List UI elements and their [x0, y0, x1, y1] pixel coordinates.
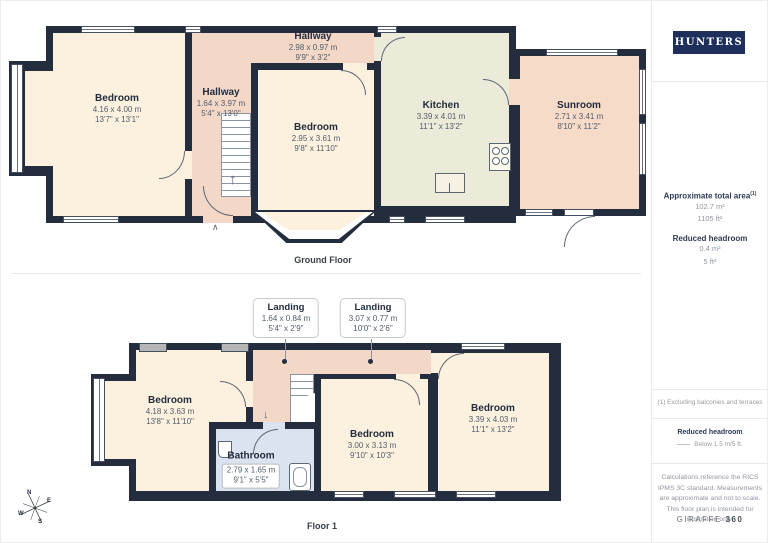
room-label-bedroom-left: Bedroom 4.18 x 3.63 m 13'8" x 11'10"	[146, 394, 194, 428]
landing-callout-b: Landing 3.07 x 0.77 m 10'0" x 2'6"	[340, 298, 406, 338]
room-label-bathroom: Bathroom 2.79 x 1.65 m 9'1" x 5'5"	[222, 450, 280, 489]
compass-e: E	[47, 498, 51, 504]
room-label-bedroom-left: Bedroom 4.16 x 4.00 m 13'7" x 13'1"	[93, 92, 141, 126]
door-opening	[374, 37, 381, 61]
compass-w: W	[18, 511, 24, 517]
sidebar-border	[651, 1, 652, 543]
bathroom-wall	[209, 422, 216, 501]
room-label-sunroom: Sunroom 2.71 x 3.41 m 8'10" x 11'2"	[555, 99, 603, 133]
window	[639, 69, 646, 115]
window	[63, 216, 119, 223]
compass-n: N	[27, 490, 31, 496]
obscured-window	[139, 343, 167, 352]
room-label-hallway-top: Hallway 2.98 x 0.97 m 9'9" x 3'2"	[289, 30, 337, 64]
sidebar-divider	[651, 81, 768, 82]
gf-hallway-connector	[251, 33, 258, 63]
stairs-up-arrow: ↑	[229, 171, 237, 188]
giraffe360-credit: GIRAFFE 360	[651, 515, 768, 524]
sunroom-door-opening	[564, 209, 594, 216]
compass-rose: N E S W	[13, 486, 57, 530]
door-opening	[263, 422, 285, 429]
callout-leader	[371, 339, 372, 361]
compass-s: S	[38, 519, 42, 525]
ground-floor-label: Ground Floor	[294, 255, 352, 265]
window	[394, 491, 436, 498]
reduced-headroom-imperial: 5 ft²	[651, 256, 768, 269]
area-summary: Approximate total area(1) 102.7 m² 1105 …	[651, 191, 768, 269]
reduced-headroom-metric: 0.4 m²	[651, 243, 768, 256]
bay-window-glass	[93, 378, 105, 462]
window	[389, 216, 405, 223]
total-area-imperial: 1105 ft²	[651, 213, 768, 226]
callout-leader	[285, 339, 286, 361]
window	[546, 49, 618, 56]
sidebar-divider	[651, 418, 768, 419]
reduced-headroom-title: Reduced headroom	[651, 234, 768, 243]
total-area-title: Approximate total area(1)	[651, 191, 768, 201]
legend: Reduced headroom Below 1.5 m/5 ft.	[651, 429, 768, 448]
f1-landing-strip	[253, 350, 431, 374]
window	[185, 26, 201, 33]
window	[639, 123, 646, 175]
sidebar-divider	[651, 463, 768, 464]
cooker-icon	[489, 143, 511, 171]
total-area-metric: 102.7 m²	[651, 201, 768, 214]
window	[334, 491, 364, 498]
landing-callout-a: Landing 1.64 x 0.84 m 5'4" x 2'9"	[253, 298, 319, 338]
callout-dot	[368, 359, 373, 364]
bay-window-glass	[11, 64, 23, 173]
window	[456, 491, 496, 498]
entrance-arrow: ∧	[212, 222, 219, 233]
compass-star-icon	[13, 486, 57, 530]
stairs-down-arrow: ↓	[263, 409, 269, 421]
legend-item: Below 1.5 m/5 ft.	[651, 441, 768, 448]
room-label-kitchen: Kitchen 3.39 x 4.01 m 11'1" x 13'2"	[417, 99, 465, 133]
footnote-marker: (1)	[750, 191, 756, 197]
window	[425, 216, 465, 223]
bay-opening	[105, 381, 139, 459]
window	[461, 343, 505, 350]
window	[525, 209, 553, 216]
room-label-bedroom-mid: Bedroom 2.95 x 3.61 m 9'8" x 11'10"	[292, 121, 340, 155]
legend-line-icon	[677, 444, 690, 445]
window	[377, 26, 397, 33]
floor-divider	[11, 273, 641, 274]
door-opening	[185, 151, 192, 179]
door-opening	[246, 381, 253, 407]
footnote: (1) Excluding balconies and terraces	[651, 399, 768, 406]
door-opening	[509, 79, 520, 105]
door-opening	[343, 63, 367, 70]
room-label-hallway: Hallway 1.64 x 3.97 m 5'4" x 13'0"	[197, 86, 245, 120]
floorplan-page: ↑ ∧ Bedroom	[0, 0, 768, 543]
callout-dot	[282, 359, 287, 364]
sunroom-door-arc	[564, 216, 595, 247]
window	[81, 26, 135, 33]
door-opening	[396, 374, 420, 379]
obscured-window	[221, 343, 249, 352]
bathtub-icon	[289, 463, 311, 491]
first-floor-label: Floor 1	[307, 521, 337, 531]
door-opening	[431, 353, 438, 373]
sink-unit-icon	[435, 173, 465, 193]
hunters-logo: HUNTERS	[673, 31, 745, 54]
room-label-bedroom-right: Bedroom 3.39 x 4.03 m 11'1" x 13'2"	[469, 402, 517, 436]
legend-title: Reduced headroom	[651, 429, 768, 436]
sidebar-divider	[651, 389, 768, 390]
room-label-bedroom-mid: Bedroom 3.00 x 3.13 m 9'10" x 10'3"	[348, 428, 396, 462]
